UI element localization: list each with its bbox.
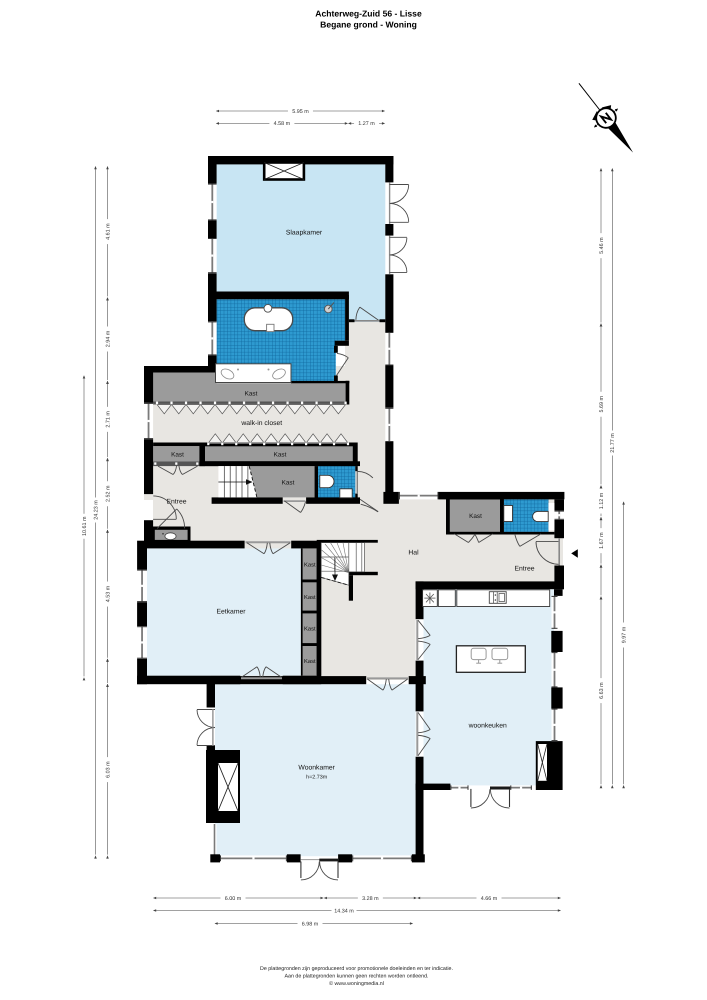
- svg-text:Achterweg-Zuid 56 - Lisse: Achterweg-Zuid 56 - Lisse: [315, 9, 422, 19]
- svg-text:4.61 m: 4.61 m: [105, 223, 111, 240]
- svg-text:Kast: Kast: [304, 595, 316, 601]
- svg-text:6.98 m: 6.98 m: [302, 921, 319, 927]
- svg-text:4.53 m: 4.53 m: [105, 585, 111, 602]
- svg-text:5.46 m: 5.46 m: [599, 237, 605, 254]
- svg-text:Slaapkamer: Slaapkamer: [286, 229, 323, 236]
- svg-text:Kast: Kast: [304, 659, 316, 665]
- svg-text:Kast: Kast: [304, 562, 316, 568]
- svg-text:6.03 m: 6.03 m: [105, 761, 111, 778]
- svg-text:Kast: Kast: [304, 627, 316, 633]
- svg-text:Eetkamer: Eetkamer: [216, 609, 246, 616]
- svg-text:10.61 m: 10.61 m: [82, 516, 88, 536]
- svg-text:De plattegronden zijn geproduc: De plattegronden zijn geproduceerd voor …: [260, 966, 453, 972]
- svg-text:Kast: Kast: [274, 451, 287, 458]
- svg-text:3.28 m: 3.28 m: [362, 896, 379, 902]
- svg-text:Kast: Kast: [171, 451, 184, 458]
- svg-text:9.97 m: 9.97 m: [621, 626, 627, 643]
- svg-text:Begane grond - Woning: Begane grond - Woning: [320, 20, 417, 30]
- svg-text:2.94 m: 2.94 m: [105, 330, 111, 347]
- svg-text:Hal: Hal: [408, 550, 419, 557]
- svg-text:5.95 m: 5.95 m: [292, 109, 309, 115]
- svg-text:14.34 m: 14.34 m: [334, 908, 354, 914]
- svg-text:Kast: Kast: [469, 513, 482, 520]
- svg-text:6.00 m: 6.00 m: [225, 896, 242, 902]
- svg-text:Entree: Entree: [514, 566, 534, 573]
- svg-text:woonkeuken: woonkeuken: [468, 723, 507, 730]
- svg-text:2.71 m: 2.71 m: [105, 411, 111, 428]
- svg-text:2.52 m: 2.52 m: [105, 485, 111, 502]
- svg-text:Entree: Entree: [166, 499, 186, 506]
- svg-text:1.12 m: 1.12 m: [599, 492, 605, 509]
- svg-text:6.63 m: 6.63 m: [599, 682, 605, 699]
- svg-text:Aan de plattegronden kunnen ge: Aan de plattegronden kunnen geen rechten…: [284, 974, 428, 980]
- svg-text:h=2.73m: h=2.73m: [306, 775, 328, 781]
- svg-text:Kast: Kast: [282, 480, 295, 487]
- svg-text:5.69 m: 5.69 m: [599, 396, 605, 413]
- svg-text:walk-in closet: walk-in closet: [240, 420, 282, 427]
- svg-text:© www.woningmedia.nl: © www.woningmedia.nl: [329, 981, 384, 987]
- svg-text:Kast: Kast: [245, 391, 258, 398]
- svg-text:24.23 m: 24.23 m: [93, 500, 99, 520]
- svg-text:1.67 m: 1.67 m: [599, 532, 605, 549]
- svg-text:1.27 m: 1.27 m: [358, 121, 375, 127]
- svg-text:21.77 m: 21.77 m: [610, 433, 616, 453]
- svg-text:Woonkamer: Woonkamer: [298, 765, 335, 772]
- svg-text:4.66 m: 4.66 m: [481, 896, 498, 902]
- svg-text:4.58 m: 4.58 m: [274, 121, 291, 127]
